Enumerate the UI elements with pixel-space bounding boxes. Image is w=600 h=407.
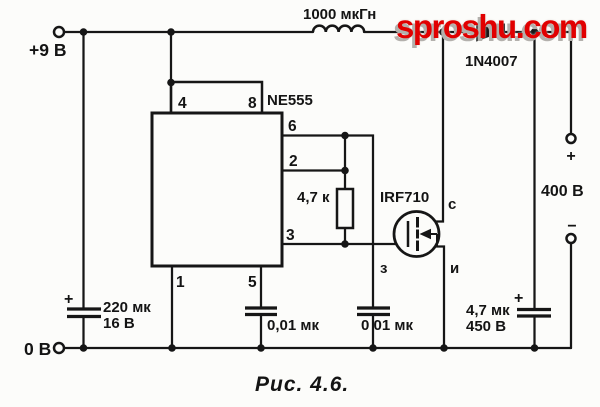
ic-label: NE555 <box>267 92 313 109</box>
diode-label: 1N4007 <box>465 53 518 70</box>
mosfet-symbol <box>394 212 439 257</box>
ic-pin3-label: 3 <box>286 227 295 244</box>
watermark-text: sproshu.com <box>396 8 587 46</box>
input-cap-value: 220 мк <box>103 299 151 316</box>
inductor-label: 1000 мкГн <box>303 6 376 23</box>
output-voltage-label: 400 В <box>541 183 584 200</box>
resistor-body <box>337 189 353 228</box>
mosfet-drain-label: с <box>448 196 456 213</box>
mosfet-label: IRF710 <box>380 189 429 206</box>
ground-rail-label: 0 В <box>24 339 51 359</box>
ic-pin5-label: 5 <box>248 274 257 291</box>
output-cap-plus: + <box>514 290 523 307</box>
ic-pin6-label: 6 <box>288 118 297 135</box>
mosfet-gate-label: з <box>380 260 387 277</box>
ic-pin2-label: 2 <box>289 153 298 170</box>
scanned-schematic-page: +9 В 0 В 1000 мкГн 1N4007 NE555 4 8 6 2 … <box>0 0 600 407</box>
figure-caption: Рис. 4.6. <box>255 373 349 396</box>
output-cap-value: 4,7 мк <box>466 302 510 319</box>
schematic-canvas: +9 В 0 В 1000 мкГн 1N4007 NE555 4 8 6 2 … <box>0 0 600 407</box>
ic-ne555-body <box>152 82 282 266</box>
positive-rail-label: +9 В <box>29 40 66 60</box>
input-neg-terminal <box>54 343 64 353</box>
inductor-coil <box>313 26 364 32</box>
output-neg-terminal <box>567 234 576 243</box>
ic-pin1-label: 1 <box>176 274 185 291</box>
output-cap-voltage: 450 В <box>466 318 506 335</box>
input-pos-terminal <box>54 27 64 37</box>
output-plus-label: + <box>566 148 575 165</box>
ic-pin8-label: 8 <box>248 95 257 112</box>
timing-cap-value: 0 01 мк <box>361 317 413 334</box>
output-pos-terminal <box>567 134 576 143</box>
ic-pin4-label: 4 <box>178 95 187 112</box>
source-wire <box>418 247 445 349</box>
resistor-label: 4,7 к <box>297 189 330 206</box>
pin5-cap-value: 0,01 мк <box>267 317 319 334</box>
input-cap-voltage: 16 В <box>103 315 135 332</box>
input-cap-plates <box>67 309 101 317</box>
timing-cap-plates <box>357 308 390 315</box>
ic-main-box <box>152 113 282 266</box>
mosfet-source-label: и <box>450 260 459 277</box>
input-cap-plus: + <box>64 291 73 308</box>
output-cap-plates <box>517 310 551 317</box>
pin5-cap-plates <box>245 308 277 315</box>
output-minus-label: − <box>567 218 576 235</box>
